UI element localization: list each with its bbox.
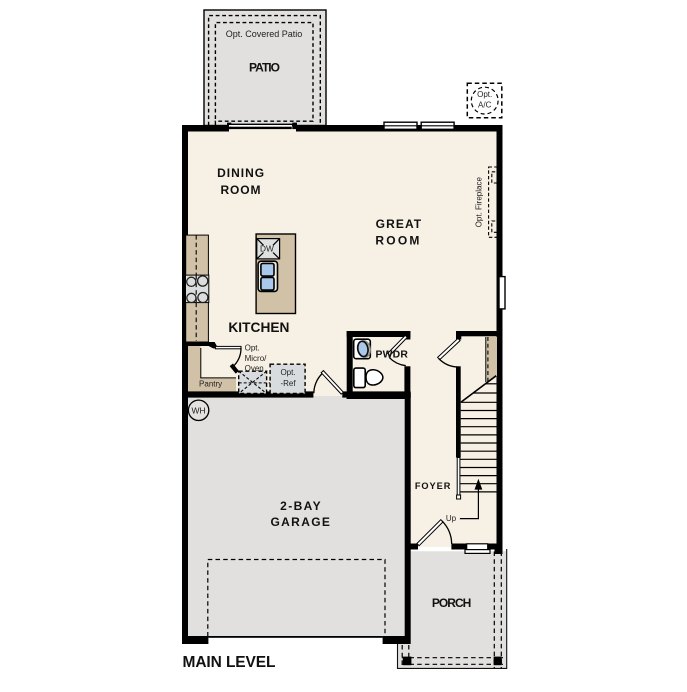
svg-text:Oven: Oven (245, 364, 264, 373)
svg-text:GREAT: GREAT (376, 217, 422, 231)
svg-text:PATIO: PATIO (249, 60, 280, 74)
svg-text:DINING: DINING (217, 166, 264, 180)
svg-text:ROOM: ROOM (221, 183, 261, 197)
svg-text:WH: WH (192, 405, 206, 415)
svg-text:KITCHEN: KITCHEN (228, 320, 289, 335)
svg-text:2-BAY: 2-BAY (280, 499, 321, 513)
svg-text:PWDR: PWDR (375, 350, 408, 361)
svg-text:MAIN LEVEL: MAIN LEVEL (183, 654, 276, 671)
svg-text:Opt.: Opt. (245, 343, 260, 352)
svg-text:FOYER: FOYER (415, 481, 451, 491)
svg-text:-Ref: -Ref (280, 379, 296, 388)
svg-text:DW: DW (260, 244, 274, 254)
svg-text:Opt. Covered Patio: Opt. Covered Patio (226, 29, 303, 39)
svg-text:Opt. Fireplace: Opt. Fireplace (475, 177, 484, 228)
svg-text:A/C: A/C (478, 101, 492, 110)
svg-text:PORCH: PORCH (432, 596, 472, 610)
svg-text:Opt.: Opt. (280, 368, 295, 377)
svg-text:Up: Up (446, 514, 457, 523)
svg-text:Micro/: Micro/ (245, 354, 268, 363)
svg-text:ROOM: ROOM (375, 233, 419, 247)
svg-text:Opt.: Opt. (477, 90, 492, 99)
svg-text:Pantry: Pantry (199, 380, 222, 389)
